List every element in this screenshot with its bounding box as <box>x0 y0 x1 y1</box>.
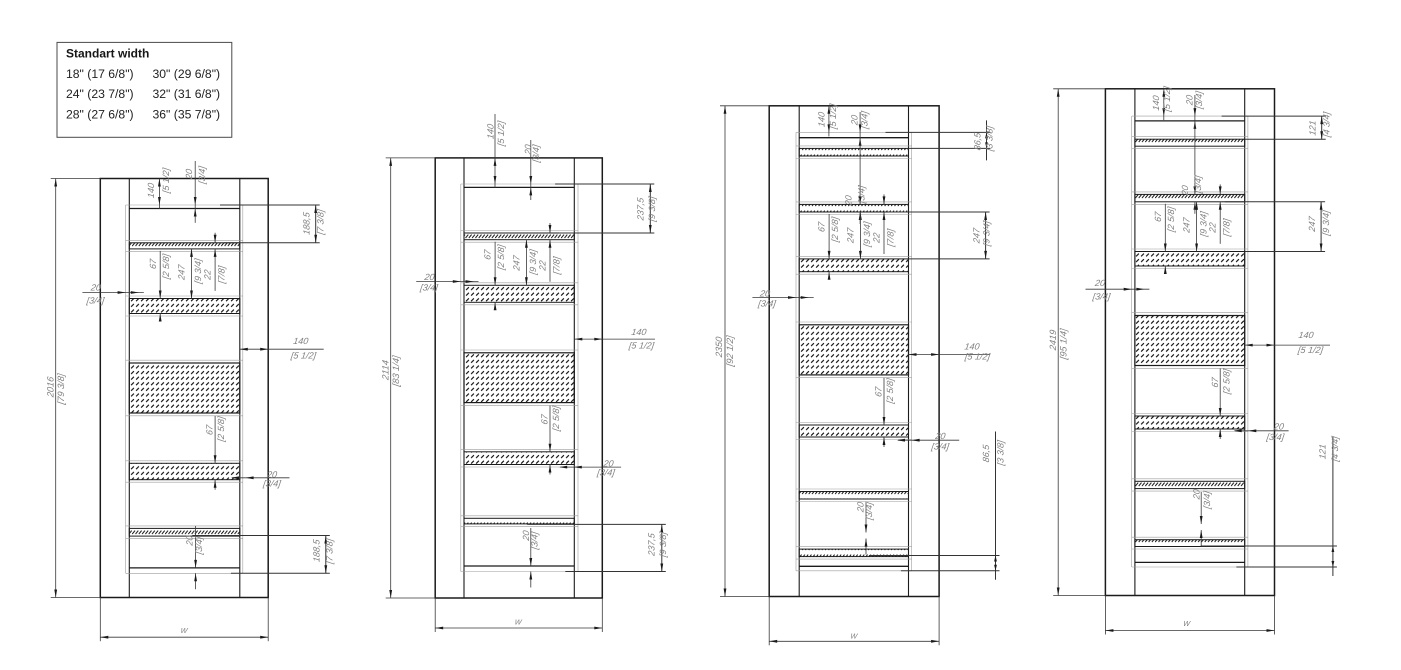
svg-text:247: 247 <box>972 226 982 244</box>
svg-text:188,5: 188,5 <box>312 538 322 563</box>
svg-text:[2 5/8]: [2 5/8] <box>1221 368 1231 396</box>
svg-text:24" (23 7/8"): 24" (23 7/8") <box>66 87 134 101</box>
svg-text:140: 140 <box>964 341 980 351</box>
svg-text:[3/4]: [3/4] <box>1091 291 1111 301</box>
svg-text:[4 3/4]: [4 3/4] <box>1322 111 1332 139</box>
svg-text:20: 20 <box>934 431 946 441</box>
svg-text:20: 20 <box>1093 278 1105 288</box>
svg-text:[5 1/2]: [5 1/2] <box>161 167 171 195</box>
svg-text:[3/4]: [3/4] <box>930 441 950 451</box>
svg-text:140: 140 <box>146 182 156 198</box>
svg-text:2016: 2016 <box>46 375 56 399</box>
svg-text:20: 20 <box>1192 489 1202 501</box>
svg-text:Standart width: Standart width <box>66 47 149 61</box>
svg-text:[2 5/8]: [2 5/8] <box>830 216 840 244</box>
svg-text:140: 140 <box>1151 95 1161 111</box>
svg-text:86,5: 86,5 <box>972 131 982 151</box>
svg-text:[5 1/2]: [5 1/2] <box>289 351 317 361</box>
svg-text:[2 5/8]: [2 5/8] <box>496 244 506 272</box>
svg-text:[3/4]: [3/4] <box>1202 490 1212 510</box>
svg-text:[7 3/8]: [7 3/8] <box>316 208 326 236</box>
svg-text:20: 20 <box>844 195 854 207</box>
svg-text:22: 22 <box>202 269 212 281</box>
svg-text:20: 20 <box>849 114 859 126</box>
svg-text:2114: 2114 <box>381 359 391 381</box>
svg-text:[3/4]: [3/4] <box>757 298 777 308</box>
svg-text:121: 121 <box>1317 443 1327 459</box>
svg-text:140: 140 <box>485 123 495 139</box>
svg-text:[7/8]: [7/8] <box>1222 218 1232 238</box>
svg-text:[95 1/4]: [95 1/4] <box>1059 327 1069 360</box>
svg-text:[3 3/8]: [3 3/8] <box>984 125 994 153</box>
svg-text:121: 121 <box>1308 120 1318 136</box>
svg-text:[5 1/2]: [5 1/2] <box>627 340 655 350</box>
svg-text:[5 1/2]: [5 1/2] <box>828 103 838 131</box>
svg-text:20: 20 <box>423 272 435 282</box>
svg-text:[3/4]: [3/4] <box>194 535 204 555</box>
svg-text:[7 3/8]: [7 3/8] <box>325 538 335 566</box>
svg-text:[4 3/4]: [4 3/4] <box>1330 435 1340 463</box>
svg-text:[9 3/8]: [9 3/8] <box>647 195 657 223</box>
svg-text:247: 247 <box>1182 216 1192 234</box>
svg-text:188,5: 188,5 <box>302 211 312 236</box>
svg-text:20: 20 <box>758 288 770 298</box>
svg-text:[3/4]: [3/4] <box>1194 90 1204 110</box>
svg-text:[7/8]: [7/8] <box>217 265 227 285</box>
svg-text:[5 1/2]: [5 1/2] <box>963 351 991 361</box>
svg-text:[3/4]: [3/4] <box>859 110 869 130</box>
svg-text:[9 3/4]: [9 3/4] <box>1321 209 1331 237</box>
svg-text:20: 20 <box>1184 94 1194 106</box>
svg-text:237,5: 237,5 <box>647 532 657 558</box>
svg-text:247: 247 <box>845 226 855 244</box>
svg-text:[3/4]: [3/4] <box>419 283 439 293</box>
svg-text:[83 1/4]: [83 1/4] <box>391 354 401 387</box>
svg-text:[3/4]: [3/4] <box>596 467 616 477</box>
svg-text:[3/4]: [3/4] <box>85 295 105 305</box>
svg-text:86,5: 86,5 <box>981 443 991 463</box>
svg-text:[3/4]: [3/4] <box>857 184 867 204</box>
svg-text:28" (27 6/8"): 28" (27 6/8") <box>66 107 134 121</box>
svg-text:[7/8]: [7/8] <box>886 228 896 248</box>
svg-text:247: 247 <box>1307 215 1317 233</box>
svg-text:20: 20 <box>184 168 194 180</box>
svg-text:140: 140 <box>816 111 826 127</box>
svg-text:36" (35 7/8"): 36" (35 7/8") <box>153 107 221 121</box>
svg-text:18" (17 6/8"): 18" (17 6/8") <box>66 67 134 81</box>
svg-text:[5 1/2]: [5 1/2] <box>1162 85 1172 113</box>
svg-text:140: 140 <box>1298 330 1314 340</box>
svg-text:[79 3/8]: [79 3/8] <box>56 372 66 405</box>
svg-text:20: 20 <box>184 535 194 547</box>
svg-text:[92 1/2]: [92 1/2] <box>725 334 735 367</box>
svg-text:30" (29 6/8"): 30" (29 6/8") <box>153 67 221 81</box>
svg-text:[2 5/8]: [2 5/8] <box>161 253 171 281</box>
svg-text:2350: 2350 <box>714 335 724 359</box>
svg-text:140: 140 <box>631 327 647 337</box>
svg-text:32" (31 6/8"): 32" (31 6/8") <box>153 87 221 101</box>
svg-text:[9 3/8]: [9 3/8] <box>658 531 668 559</box>
svg-text:[5 1/2]: [5 1/2] <box>496 120 506 148</box>
svg-text:237,5: 237,5 <box>636 196 646 222</box>
svg-text:[3/4]: [3/4] <box>531 143 541 163</box>
svg-text:[3/4]: [3/4] <box>529 531 539 551</box>
svg-text:247: 247 <box>177 263 187 281</box>
svg-text:22: 22 <box>1208 222 1218 234</box>
svg-text:20: 20 <box>1180 185 1190 197</box>
svg-text:140: 140 <box>293 336 309 346</box>
svg-text:247: 247 <box>511 254 521 272</box>
svg-text:[3/4]: [3/4] <box>864 501 874 521</box>
svg-text:[2 5/8]: [2 5/8] <box>1166 206 1176 234</box>
svg-text:22: 22 <box>871 232 881 244</box>
svg-text:20: 20 <box>1272 422 1284 432</box>
svg-text:[5 1/2]: [5 1/2] <box>1296 345 1324 355</box>
svg-text:20: 20 <box>89 283 101 293</box>
svg-text:[2 5/8]: [2 5/8] <box>551 405 561 433</box>
svg-text:[7/8]: [7/8] <box>552 255 562 275</box>
svg-text:[3/4]: [3/4] <box>262 479 282 489</box>
svg-text:2419: 2419 <box>1048 329 1058 352</box>
svg-text:[3/4]: [3/4] <box>197 165 207 185</box>
svg-text:22: 22 <box>537 260 547 272</box>
svg-text:[9 3/4]: [9 3/4] <box>982 220 992 248</box>
svg-text:[3/4]: [3/4] <box>1193 174 1203 194</box>
svg-text:[2 5/8]: [2 5/8] <box>216 415 226 443</box>
svg-text:[2 5/8]: [2 5/8] <box>885 377 895 405</box>
svg-text:[3/4]: [3/4] <box>1265 432 1285 442</box>
svg-text:[3 3/8]: [3 3/8] <box>995 439 1005 467</box>
